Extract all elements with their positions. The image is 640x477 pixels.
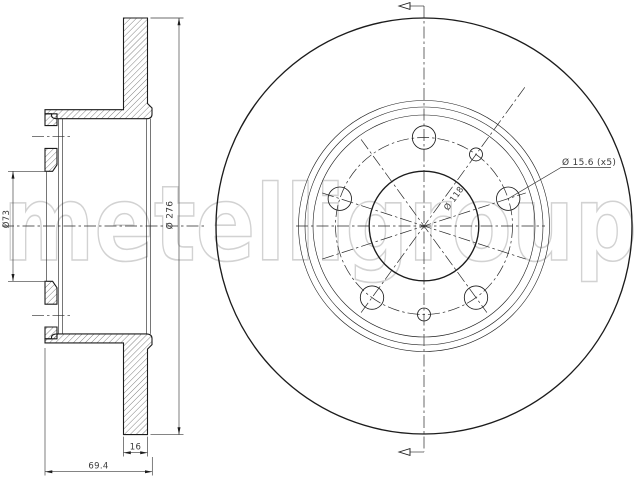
dim-arrow (145, 470, 152, 473)
watermark-text: metelligroup (3, 163, 637, 285)
dim-overall-height-text: 69.4 (88, 462, 108, 472)
datum-arrow-top (399, 3, 424, 10)
datum-arrow-bottom (399, 449, 424, 456)
section-upper-ring-flange (45, 18, 152, 119)
section-hat-face-segment (45, 327, 57, 339)
section-hat-face-segment (45, 281, 57, 304)
dim-bolt-hole-text: Ø 15.6 (x5) (562, 157, 616, 168)
dim-arrow (140, 451, 147, 454)
brake-disc-technical-drawing: metelligroup (0, 0, 640, 477)
dim-arrow (178, 18, 181, 25)
section-hat-face-segment (45, 114, 57, 126)
technical-drawing-page: metelligroup (0, 0, 640, 477)
dim-disc-thickness: 16 (124, 437, 148, 457)
section-lower-ring-flange (45, 334, 152, 435)
section-hat-face-segment (45, 148, 57, 171)
datum-arrow-icon (399, 449, 410, 456)
watermark: metelligroup (3, 163, 637, 285)
datum-arrow-icon (399, 3, 410, 10)
dim-hub-bore-text: Ø73 (1, 210, 12, 228)
dim-outer-diameter-text: Ø 276 (165, 201, 176, 230)
dim-arrow (45, 470, 52, 473)
dim-arrow (178, 427, 181, 434)
section-view (2, 18, 207, 435)
dim-disc-thickness-text: 16 (130, 443, 141, 453)
